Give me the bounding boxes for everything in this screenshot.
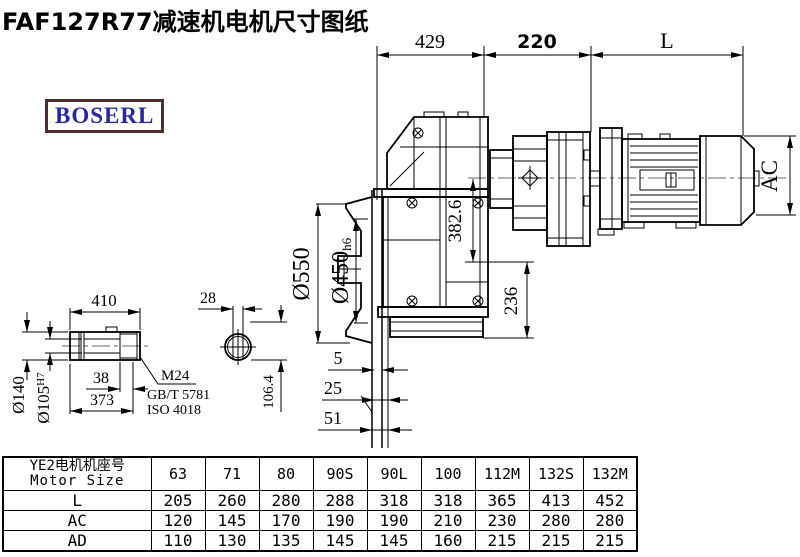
- svg-text:51: 51: [324, 408, 342, 428]
- dim-L: L: [660, 28, 673, 53]
- svg-text:236: 236: [501, 287, 522, 316]
- col-header: 132M: [583, 457, 637, 490]
- svg-text:28: 28: [200, 290, 216, 307]
- svg-text:Ø140: Ø140: [9, 376, 28, 414]
- dim-382: 382.6: [445, 179, 492, 262]
- table-cell: 210: [421, 510, 475, 530]
- dim-220: 220: [517, 31, 557, 53]
- table-row: AC 120 145 170 190 190 210 230 280 280: [3, 510, 637, 530]
- motor-size-table: YE2电机机座号 Motor Size 63 71 80 90S 90L 100…: [2, 456, 638, 552]
- fan-cowl: [700, 136, 754, 225]
- boserl-logo: BOSERL: [45, 99, 164, 133]
- boserl-logo-text: BOSERL: [55, 103, 154, 128]
- row-label: AC: [3, 510, 151, 530]
- shaft-section-circle: [220, 329, 256, 365]
- col-header: 80: [259, 457, 313, 490]
- table-cell: 145: [313, 530, 367, 551]
- svg-text:5: 5: [334, 348, 343, 368]
- table-header-row: YE2电机机座号 Motor Size 63 71 80 90S 90L 100…: [3, 457, 637, 490]
- col-header: 100: [421, 457, 475, 490]
- table-cell: 110: [151, 530, 205, 551]
- table-cell: 215: [583, 530, 637, 551]
- table-cell: 260: [205, 490, 259, 510]
- table-cell: 230: [475, 510, 529, 530]
- col-header: 132S: [529, 457, 583, 490]
- table-cell: 365: [475, 490, 529, 510]
- svg-text:Ø550: Ø550: [289, 247, 315, 300]
- row-label: L: [3, 490, 151, 510]
- svg-text:373: 373: [90, 392, 114, 409]
- svg-text:AC: AC: [757, 160, 782, 192]
- table-cell: 452: [583, 490, 637, 510]
- col-header: 71: [205, 457, 259, 490]
- page-title: FAF127R77减速机电机尺寸图纸: [2, 2, 369, 37]
- table-cell: 280: [529, 510, 583, 530]
- motor: [598, 128, 759, 235]
- table-cell: 145: [205, 510, 259, 530]
- thread-std1: GB/T 5781: [147, 388, 210, 403]
- top-dimension-chain: 429 220 L: [377, 28, 743, 200]
- svg-text:410: 410: [91, 291, 117, 310]
- table-cell: 280: [583, 510, 637, 530]
- shaft-detail: 410 Ø140 Ø105H7 38 373 M24 GB/T 5781 ISO…: [9, 290, 287, 424]
- row-label: AD: [3, 530, 151, 551]
- col-header: 63: [151, 457, 205, 490]
- dim-5-25-51: 5 25 51: [318, 348, 412, 430]
- table-header-motor-size: YE2电机机座号 Motor Size: [3, 457, 151, 490]
- col-header: 90L: [367, 457, 421, 490]
- svg-text:382.6: 382.6: [445, 200, 466, 243]
- table-cell: 135: [259, 530, 313, 551]
- thread-std2: ISO 4018: [147, 403, 201, 418]
- table-row: L 205 260 280 288 318 318 365 413 452: [3, 490, 637, 510]
- table-cell: 288: [313, 490, 367, 510]
- svg-text:Ø105H7: Ø105H7: [34, 372, 53, 424]
- table-cell: 413: [529, 490, 583, 510]
- table-cell: 170: [259, 510, 313, 530]
- table-row: AD 110 130 135 145 145 160 215 215 215: [3, 530, 637, 551]
- svg-text:Ø450h6: Ø450h6: [328, 237, 354, 304]
- table-cell: 205: [151, 490, 205, 510]
- technical-drawing: 429 220 L: [0, 0, 800, 455]
- table-cell: 215: [529, 530, 583, 551]
- thread-callout: M24: [161, 368, 190, 384]
- table-cell: 318: [421, 490, 475, 510]
- table-cell: 145: [367, 530, 421, 551]
- mounting-flange: [338, 190, 388, 448]
- header-en: Motor Size: [4, 474, 151, 489]
- table-cell: 280: [259, 490, 313, 510]
- table-cell: 120: [151, 510, 205, 530]
- dim-236: 236: [483, 262, 534, 338]
- drawing-page: 429 220 L: [0, 0, 800, 557]
- svg-text:25: 25: [324, 378, 342, 398]
- table-cell: 190: [367, 510, 421, 530]
- col-header: 90S: [313, 457, 367, 490]
- table-cell: 130: [205, 530, 259, 551]
- svg-text:106.4: 106.4: [261, 375, 277, 409]
- table-cell: 215: [475, 530, 529, 551]
- table-cell: 318: [367, 490, 421, 510]
- dim-429: 429: [415, 31, 445, 53]
- table-cell: 160: [421, 530, 475, 551]
- header-cn: YE2电机机座号: [4, 458, 151, 474]
- dim-dia450h6: Ø450h6: [328, 219, 368, 323]
- col-header: 112M: [475, 457, 529, 490]
- table-cell: 190: [313, 510, 367, 530]
- coupling-housing: [490, 132, 600, 246]
- gearbox-body: [374, 112, 488, 337]
- svg-text:38: 38: [93, 370, 109, 387]
